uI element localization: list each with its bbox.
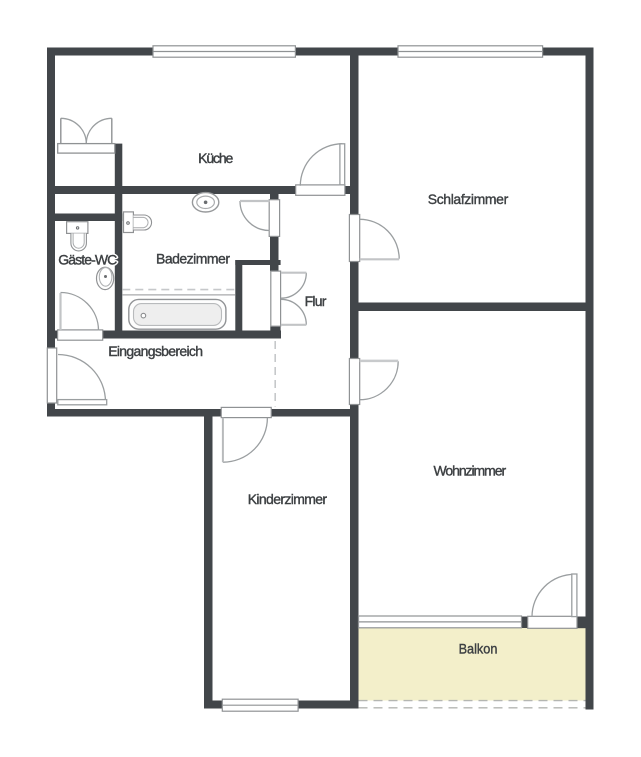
svg-text:Balkon: Balkon bbox=[459, 641, 498, 657]
